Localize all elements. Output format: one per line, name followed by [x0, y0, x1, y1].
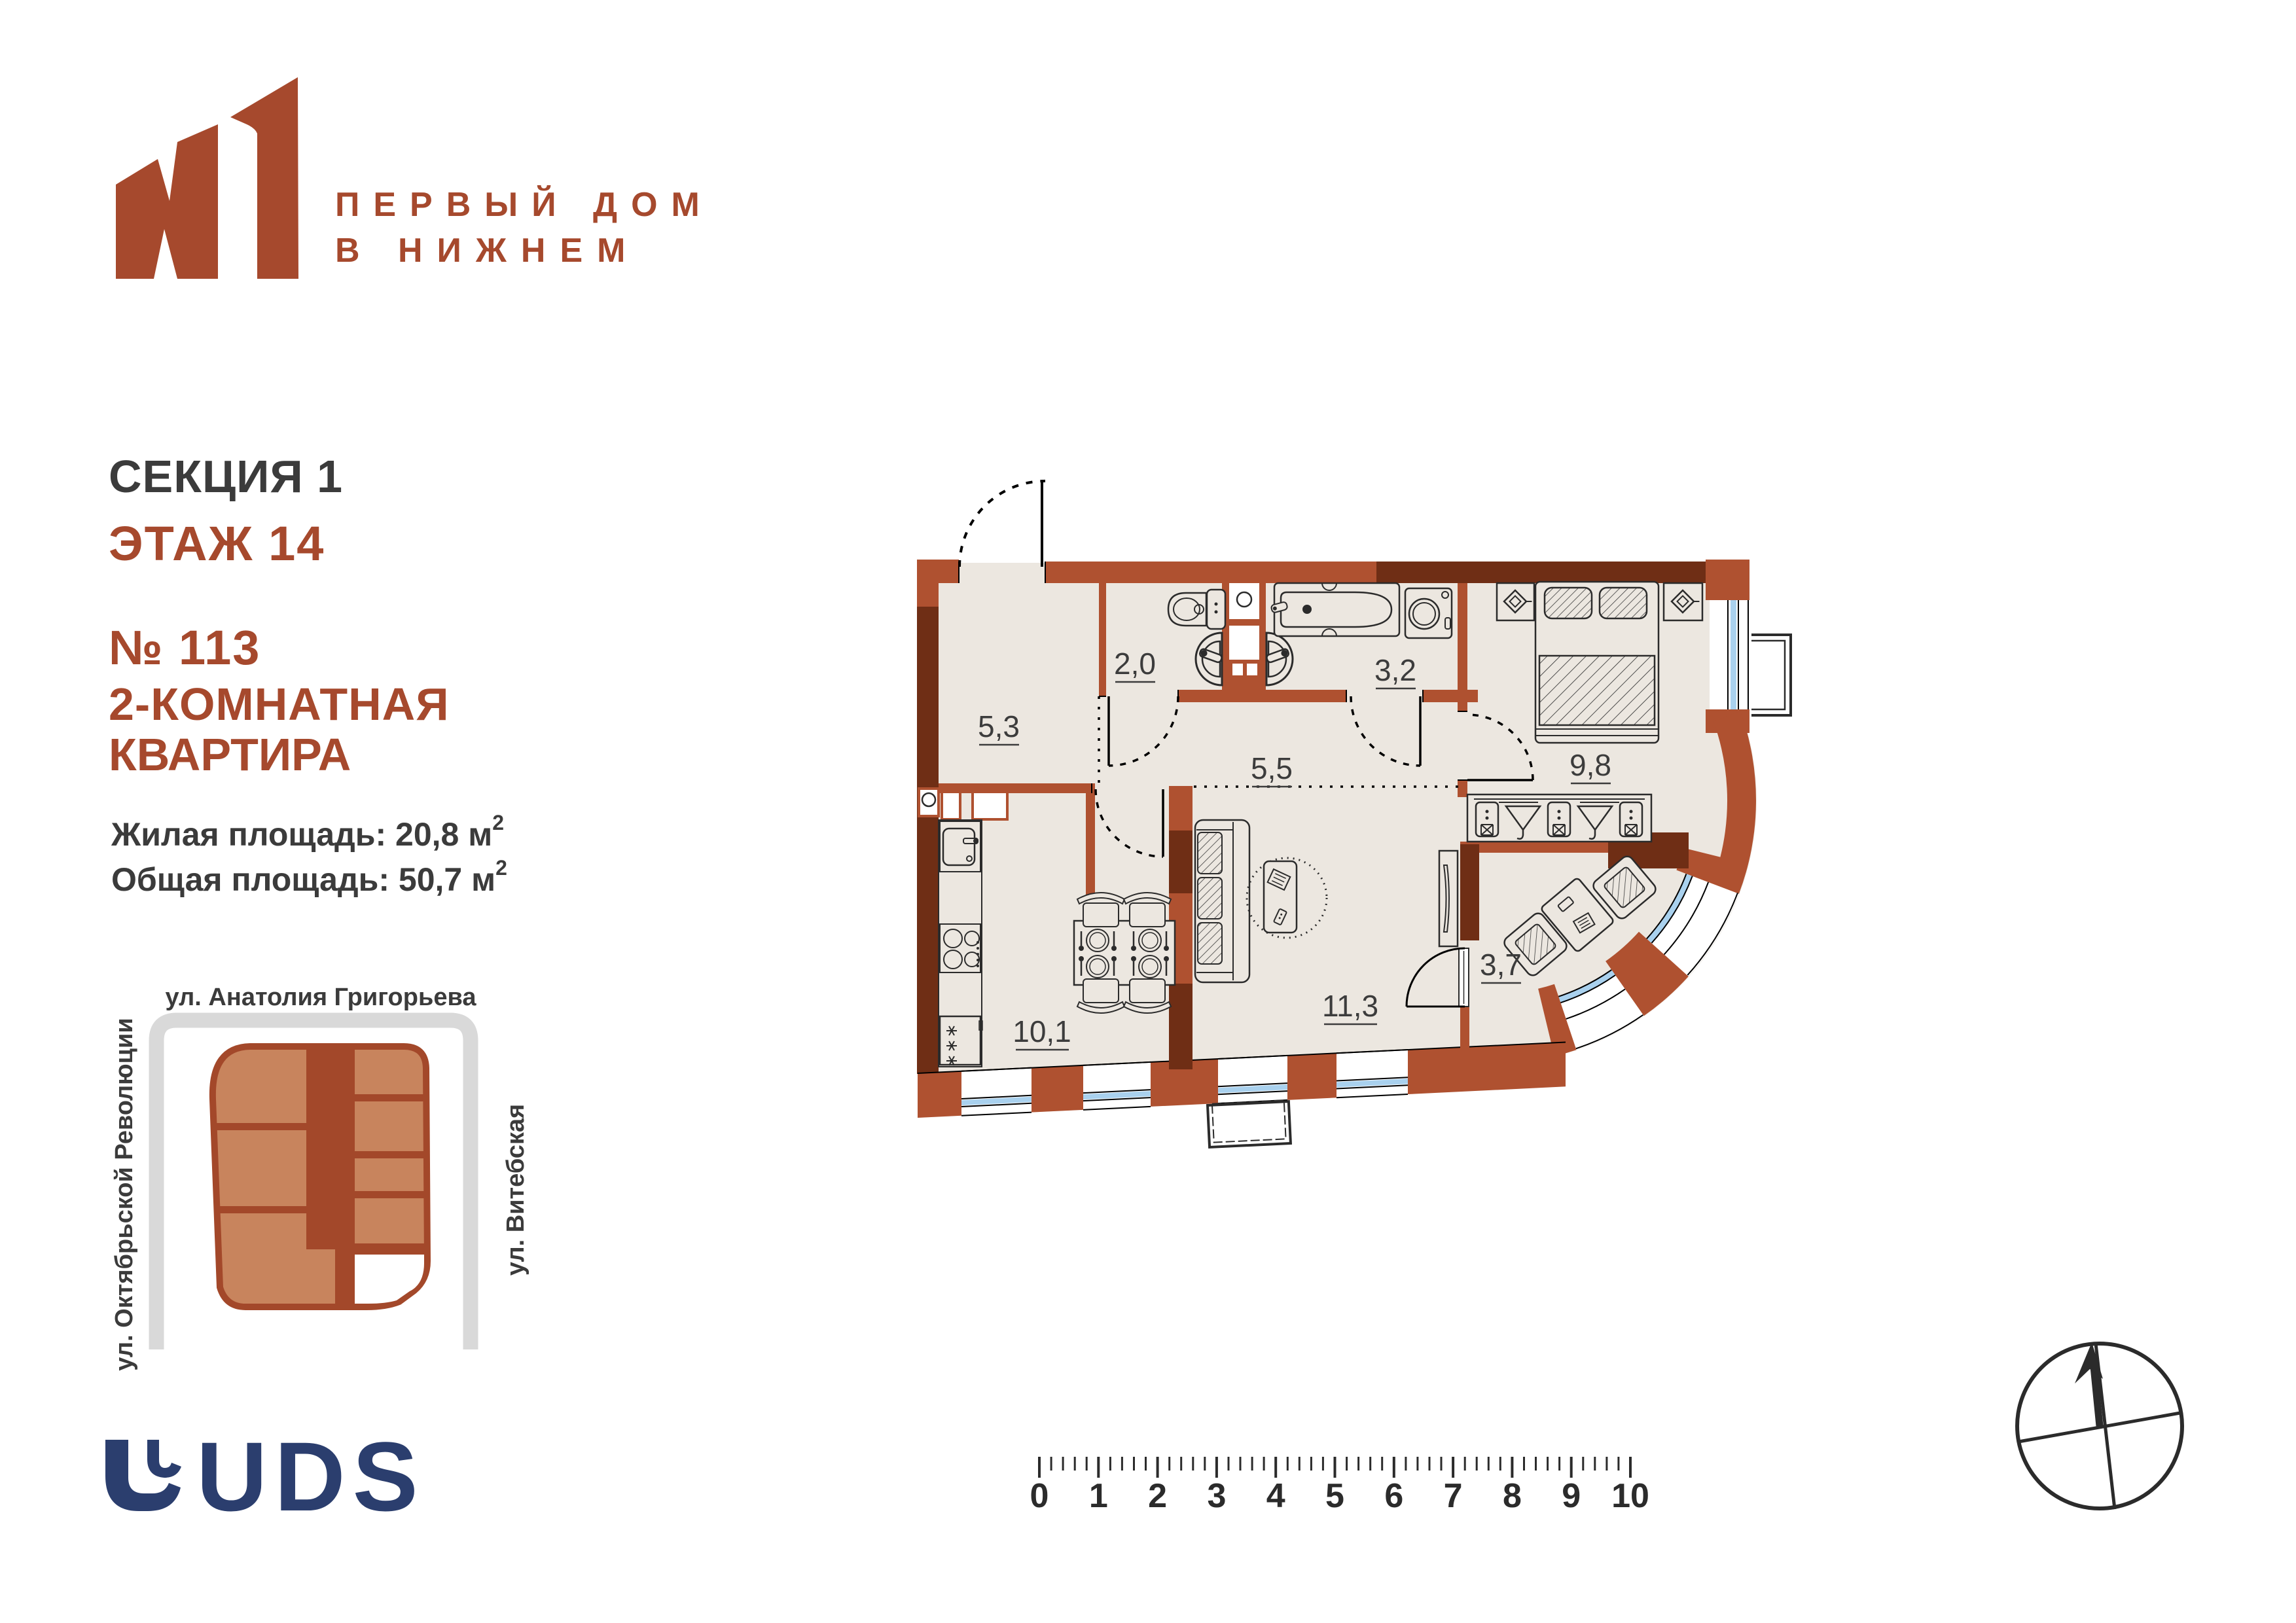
svg-text:Жилая площадь: 20,8 м2: Жилая площадь: 20,8 м2	[111, 811, 504, 853]
svg-text:10,1: 10,1	[1013, 1014, 1071, 1048]
svg-text:10: 10	[1611, 1477, 1649, 1515]
svg-text:5: 5	[1325, 1477, 1344, 1515]
svg-text:7: 7	[1444, 1477, 1463, 1515]
svg-text:СЕКЦИЯ 1: СЕКЦИЯ 1	[109, 451, 343, 502]
svg-text:9,8: 9,8	[1570, 748, 1611, 782]
svg-text:2: 2	[1148, 1477, 1167, 1515]
svg-text:ЭТАЖ 14: ЭТАЖ 14	[109, 516, 325, 571]
svg-text:КВАРТИРА: КВАРТИРА	[109, 729, 351, 780]
svg-text:ул. Витебская: ул. Витебская	[502, 1104, 529, 1275]
svg-text:0: 0	[1030, 1477, 1049, 1515]
svg-text:5,5: 5,5	[1251, 751, 1293, 785]
svg-text:6: 6	[1384, 1477, 1403, 1515]
svg-text:№ 113: № 113	[109, 620, 260, 675]
svg-text:11,3: 11,3	[1322, 989, 1378, 1023]
svg-text:ул. Анатолия Григорьева: ул. Анатолия Григорьева	[166, 984, 477, 1011]
svg-text:3: 3	[1207, 1477, 1226, 1515]
svg-text:3,2: 3,2	[1374, 653, 1416, 687]
svg-text:Общая площадь: 50,7 м2: Общая площадь: 50,7 м2	[111, 856, 507, 898]
svg-text:2,0: 2,0	[1114, 647, 1156, 681]
svg-text:1: 1	[1089, 1477, 1108, 1515]
svg-text:8: 8	[1503, 1477, 1522, 1515]
svg-text:ул. Октябрьской Революции: ул. Октябрьской Революции	[111, 1018, 138, 1370]
svg-text:4: 4	[1266, 1477, 1285, 1515]
svg-text:5,3: 5,3	[978, 709, 1020, 743]
svg-text:3,7: 3,7	[1480, 948, 1522, 982]
svg-text:2-КОМНАТНАЯ: 2-КОМНАТНАЯ	[109, 679, 450, 730]
svg-text:9: 9	[1562, 1477, 1581, 1515]
svg-text:В НИЖНЕМ: В НИЖНЕМ	[335, 232, 639, 270]
svg-text:ПЕРВЫЙ ДОМ: ПЕРВЫЙ ДОМ	[335, 185, 713, 224]
svg-text:UDS: UDS	[196, 1421, 425, 1531]
